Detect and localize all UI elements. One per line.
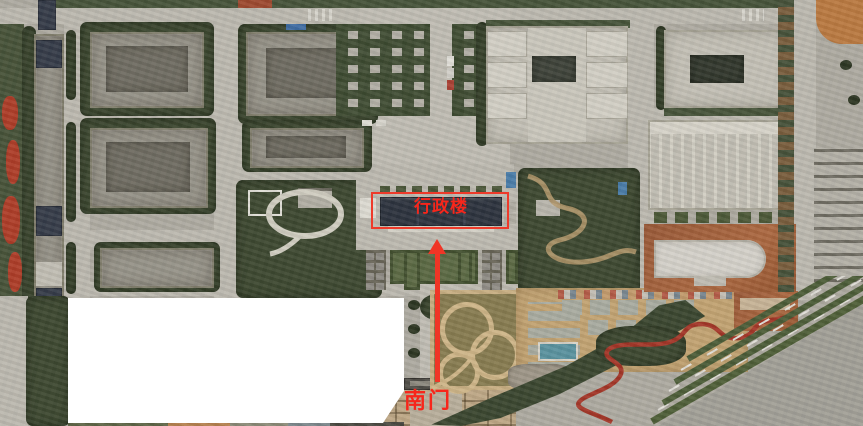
highway: [600, 276, 863, 426]
aerial-photo: 行政楼 南门: [0, 0, 863, 426]
winding-garden-path: [528, 176, 636, 262]
admin-building-label: 行政楼: [414, 199, 468, 217]
route-arrow-head-icon: [428, 239, 446, 254]
route-arrow-line: [435, 252, 440, 382]
garden-loop-path: [269, 192, 341, 236]
south-gate-label: 南门: [404, 390, 452, 413]
garden-path: [270, 236, 300, 254]
